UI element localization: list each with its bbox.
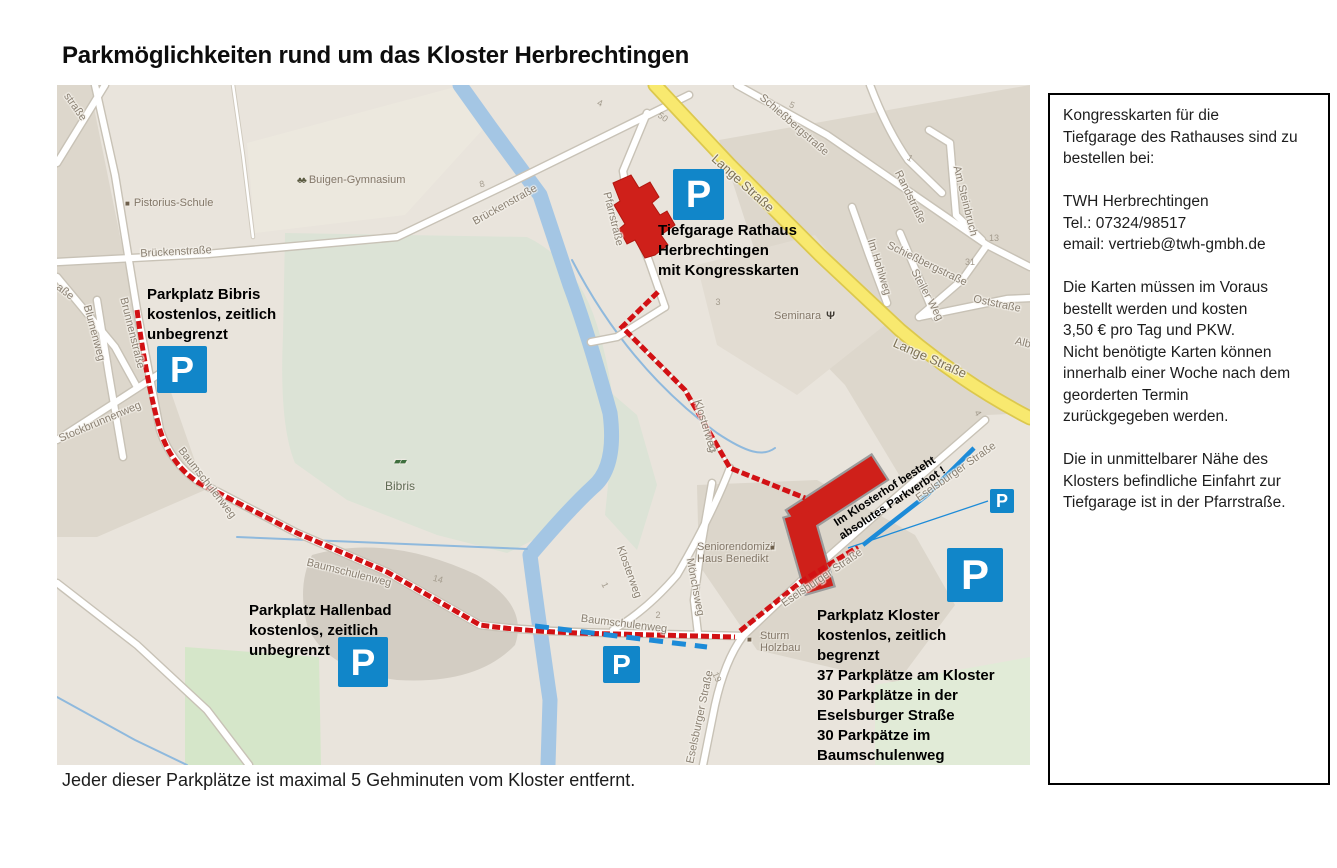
- trees-icon: ♣♣: [297, 175, 305, 185]
- house-number: 2: [655, 610, 660, 620]
- annotation-parkplatz-hallenbad: Parkplatz Hallenbad kostenlos, zeitlich …: [249, 601, 392, 661]
- poi-square-icon: ■: [770, 543, 775, 552]
- poi-pistorius-schule: ■ Pistorius-Schule: [125, 197, 213, 209]
- parking-letter: P: [996, 492, 1008, 510]
- annotation-parkplatz-kloster: Parkplatz Kloster kostenlos, zeitlich be…: [817, 606, 1030, 765]
- restaurant-icon: Ψ: [826, 310, 835, 322]
- poi-seniorendomizil: Seniorendomizil Haus Benedikt: [697, 541, 775, 565]
- poi-label: Bibris: [385, 479, 415, 493]
- parking-icon-eselsburger: P: [990, 489, 1014, 513]
- flyer-page: Parkmöglichkeiten rund um das Kloster He…: [0, 0, 1337, 868]
- parking-icon-rathaus: P: [673, 169, 724, 220]
- parking-map: Brückenstraße Brückenstraße Brunnenstraß…: [57, 85, 1030, 765]
- poi-label: Pistorius-Schule: [134, 197, 213, 209]
- poi-bibris: ▰▰ Bibris: [385, 443, 415, 493]
- poi-label: Seminara: [774, 310, 821, 322]
- poi-buigen-gymnasium: ♣♣ Buigen-Gymnasium: [297, 174, 405, 186]
- parking-letter: P: [170, 352, 194, 388]
- vegetation-icon: ▰▰: [385, 457, 415, 465]
- poi-label: Buigen-Gymnasium: [309, 174, 406, 186]
- house-number: 3: [715, 297, 720, 307]
- poi-sturm-holzbau: Sturm Holzbau: [760, 630, 800, 654]
- page-title: Parkmöglichkeiten rund um das Kloster He…: [62, 42, 689, 70]
- parking-icon-bibris: P: [157, 346, 207, 393]
- poi-seminara: Seminara Ψ: [774, 310, 835, 322]
- footer-note: Jeder dieser Parkplätze ist maximal 5 Ge…: [62, 770, 635, 791]
- parking-letter: P: [961, 554, 989, 596]
- info-box-text: Kongresskarten für die Tiefgarage des Ra…: [1063, 105, 1315, 514]
- annotation-tiefgarage-rathaus: Tiefgarage Rathaus Herbrechtingen mit Ko…: [658, 221, 799, 281]
- info-box: Kongresskarten für die Tiefgarage des Ra…: [1048, 93, 1330, 785]
- stream: [57, 697, 187, 765]
- parking-letter: P: [612, 651, 631, 679]
- house-number: 31: [965, 257, 975, 267]
- parking-letter: P: [686, 176, 711, 214]
- parking-icon-baumschulenweg: P: [603, 646, 640, 683]
- house-number: 13: [989, 233, 999, 243]
- parking-icon-kloster: P: [947, 548, 1003, 602]
- annotation-parkplatz-bibris: Parkplatz Bibris kostenlos, zeitlich unb…: [147, 285, 276, 345]
- poi-square-icon: ■: [125, 199, 130, 208]
- poi-square-icon: ■: [747, 635, 752, 644]
